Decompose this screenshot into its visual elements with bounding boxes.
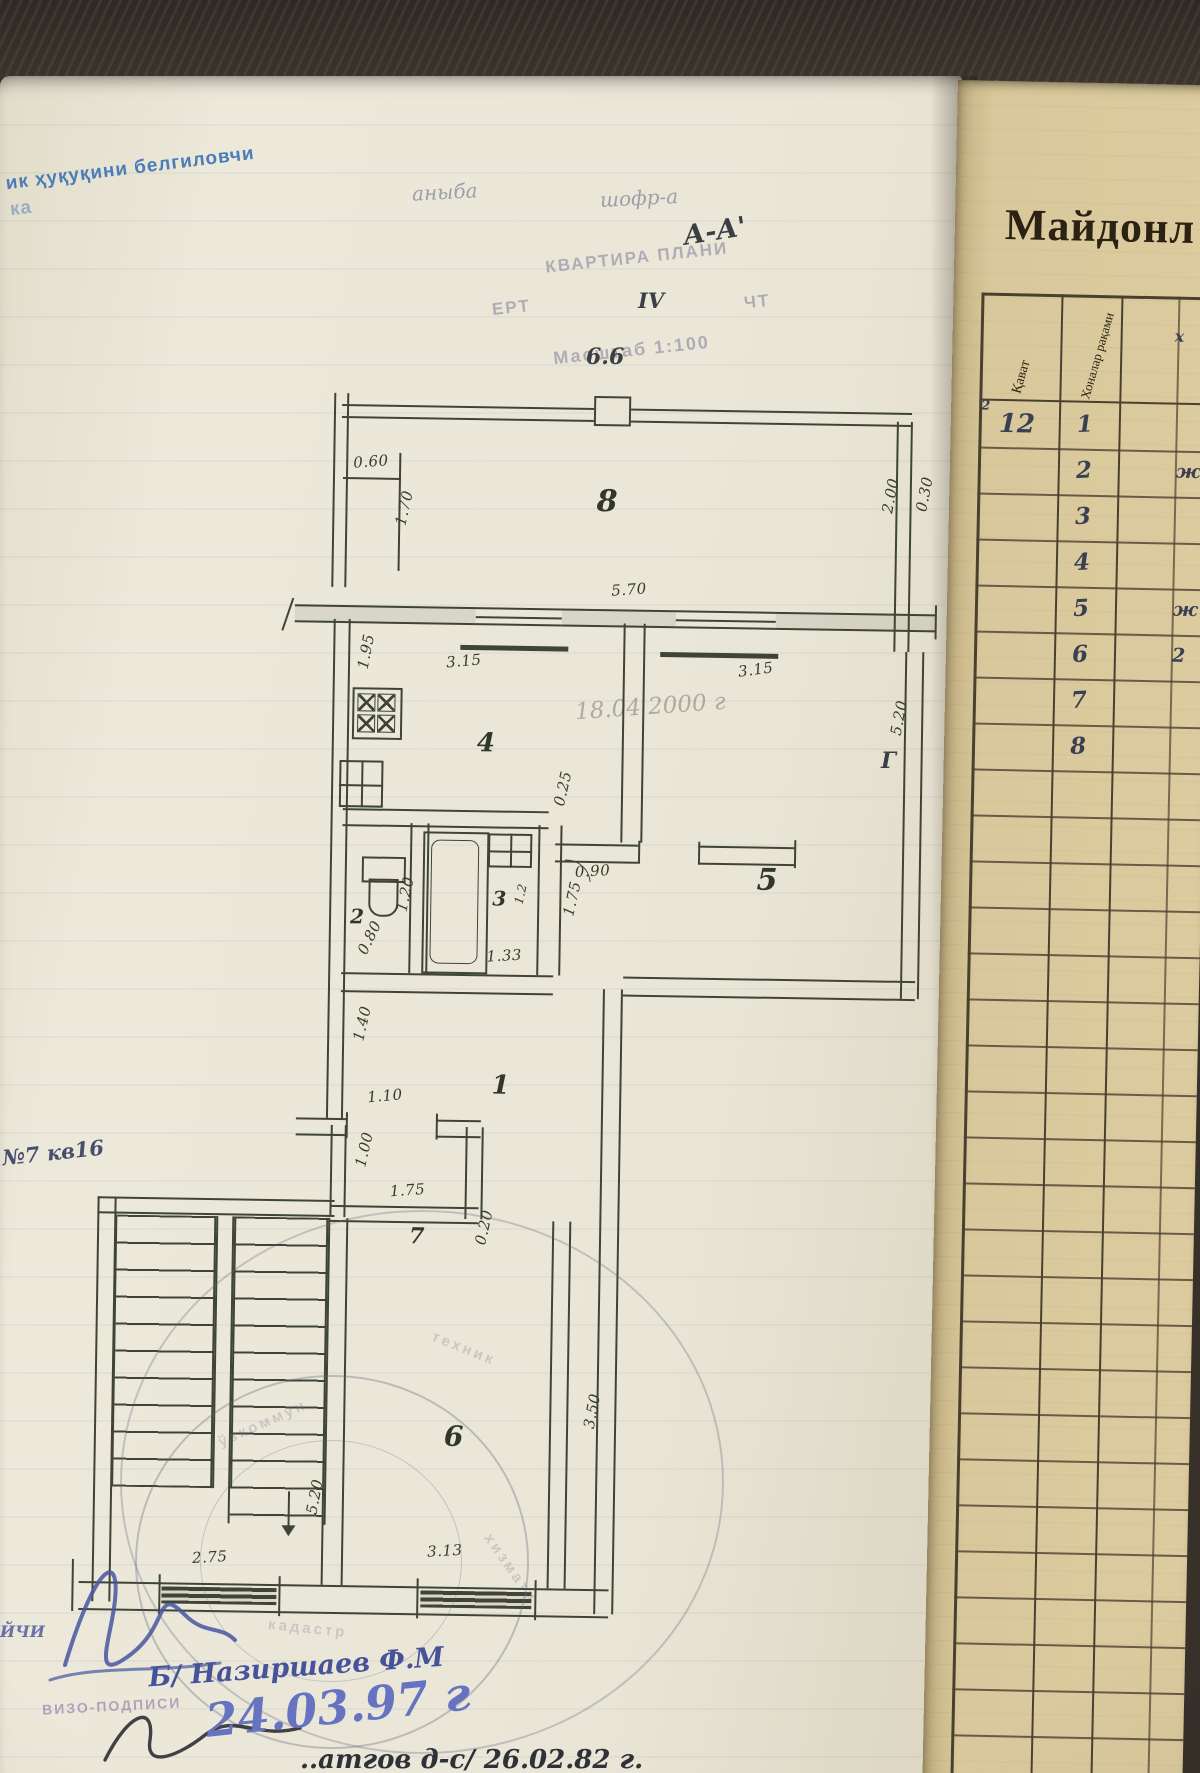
wall	[623, 977, 915, 1002]
wall-end-tick	[935, 605, 938, 639]
kitchen-sink	[339, 760, 384, 808]
wall	[620, 623, 645, 842]
right-page-content: Майдонл Қават Хоналар рақами 12 2 х 1234…	[922, 80, 1200, 1773]
dimension-label: 1.33	[486, 946, 522, 966]
wall	[698, 846, 795, 867]
dimension-label: 1.40	[349, 1004, 374, 1043]
door-jamb	[794, 840, 796, 868]
window	[676, 610, 776, 630]
room-number: 5	[756, 863, 777, 898]
header-mark: х	[1174, 327, 1184, 346]
dimension-label: 1.70	[391, 489, 416, 528]
wall	[343, 808, 549, 829]
dimension-label: 1.00	[351, 1130, 376, 1169]
table-row-line	[972, 768, 1200, 774]
table-border	[1147, 297, 1180, 1773]
room-row-number: 6	[1071, 640, 1088, 668]
dimension-label: 0.30	[912, 475, 936, 513]
table-border	[1090, 295, 1123, 1773]
door-jamb	[638, 841, 640, 864]
dimension-label: 0.60	[353, 451, 390, 471]
table-side-mark: ж	[1173, 599, 1198, 622]
table-row-line	[970, 860, 1200, 866]
dimension-label: 1.75	[389, 1180, 426, 1200]
bathtub-inner	[429, 839, 479, 964]
room-number: 4	[477, 728, 496, 758]
dimension-label: 5.70	[611, 579, 648, 599]
floor-value-handwritten: 12	[998, 409, 1035, 440]
wall	[341, 972, 553, 995]
window-sill	[660, 652, 778, 659]
window	[476, 607, 562, 626]
room-number: 3	[492, 886, 506, 910]
wall	[295, 604, 476, 625]
balcony-vent-box	[594, 396, 631, 427]
table-row-line	[973, 722, 1200, 728]
sink	[488, 833, 533, 868]
wall	[464, 1127, 483, 1219]
burner-icon	[377, 715, 395, 733]
table-side-mark: 2	[1172, 645, 1186, 667]
table-row-line	[976, 538, 1200, 544]
dimension-label: 3.15	[737, 658, 774, 680]
table-border	[982, 293, 1200, 300]
room-row-number: 4	[1073, 548, 1090, 576]
room-row-number: 7	[1070, 686, 1087, 714]
dimension-label: 1.95	[354, 632, 378, 670]
wall	[331, 393, 349, 587]
wall	[562, 608, 676, 628]
gas-stove	[352, 687, 403, 740]
photographed-document: ик ҳуқуқини белгиловчи ка аныба шофр-а А…	[0, 0, 1200, 1773]
floor-superscript: 2	[981, 399, 990, 414]
table-row-line	[971, 814, 1200, 820]
table-row-line	[978, 447, 1200, 453]
room-row-number: 3	[1074, 502, 1091, 530]
table-col2-header: Хоналар рақами	[1077, 301, 1120, 401]
room-number: 8	[596, 484, 617, 519]
table-side-mark: ж	[1176, 461, 1200, 484]
room-row-number: 2	[1075, 456, 1092, 484]
room-number: 1	[491, 1070, 510, 1100]
room-number: 2	[350, 904, 364, 928]
dimension-line	[343, 477, 401, 480]
right-page-title: Майдонл	[1004, 199, 1195, 254]
wall	[326, 619, 351, 1118]
dimension-label: 1.10	[367, 1085, 404, 1106]
wall	[776, 612, 936, 633]
dimension-label: 0.90	[574, 861, 610, 881]
wall-break-mark	[281, 598, 294, 631]
table-row-line	[973, 676, 1200, 682]
burner-icon	[357, 714, 375, 732]
dimension-label: 1.2	[512, 882, 530, 905]
burner-icon	[357, 693, 375, 711]
bottom-handwritten-line: ..атгов д-с/ 26.02.82 г.	[300, 1745, 643, 1773]
room-row-number: 1	[1076, 410, 1093, 438]
table-row-line	[975, 584, 1200, 590]
door-jamb	[698, 842, 700, 865]
table-row-line	[977, 492, 1200, 498]
door-jamb	[436, 1114, 438, 1140]
room-row-number: 8	[1069, 732, 1086, 760]
room-row-number: 5	[1072, 594, 1089, 622]
table-row-line	[974, 630, 1200, 636]
dimension-label: 0.25	[550, 769, 575, 808]
table-col1-header: Қават	[1009, 359, 1034, 396]
margin-text-fragment: ЙЧИ	[0, 1622, 45, 1641]
burner-icon	[377, 694, 395, 712]
dimension-label: 3.15	[445, 650, 482, 671]
